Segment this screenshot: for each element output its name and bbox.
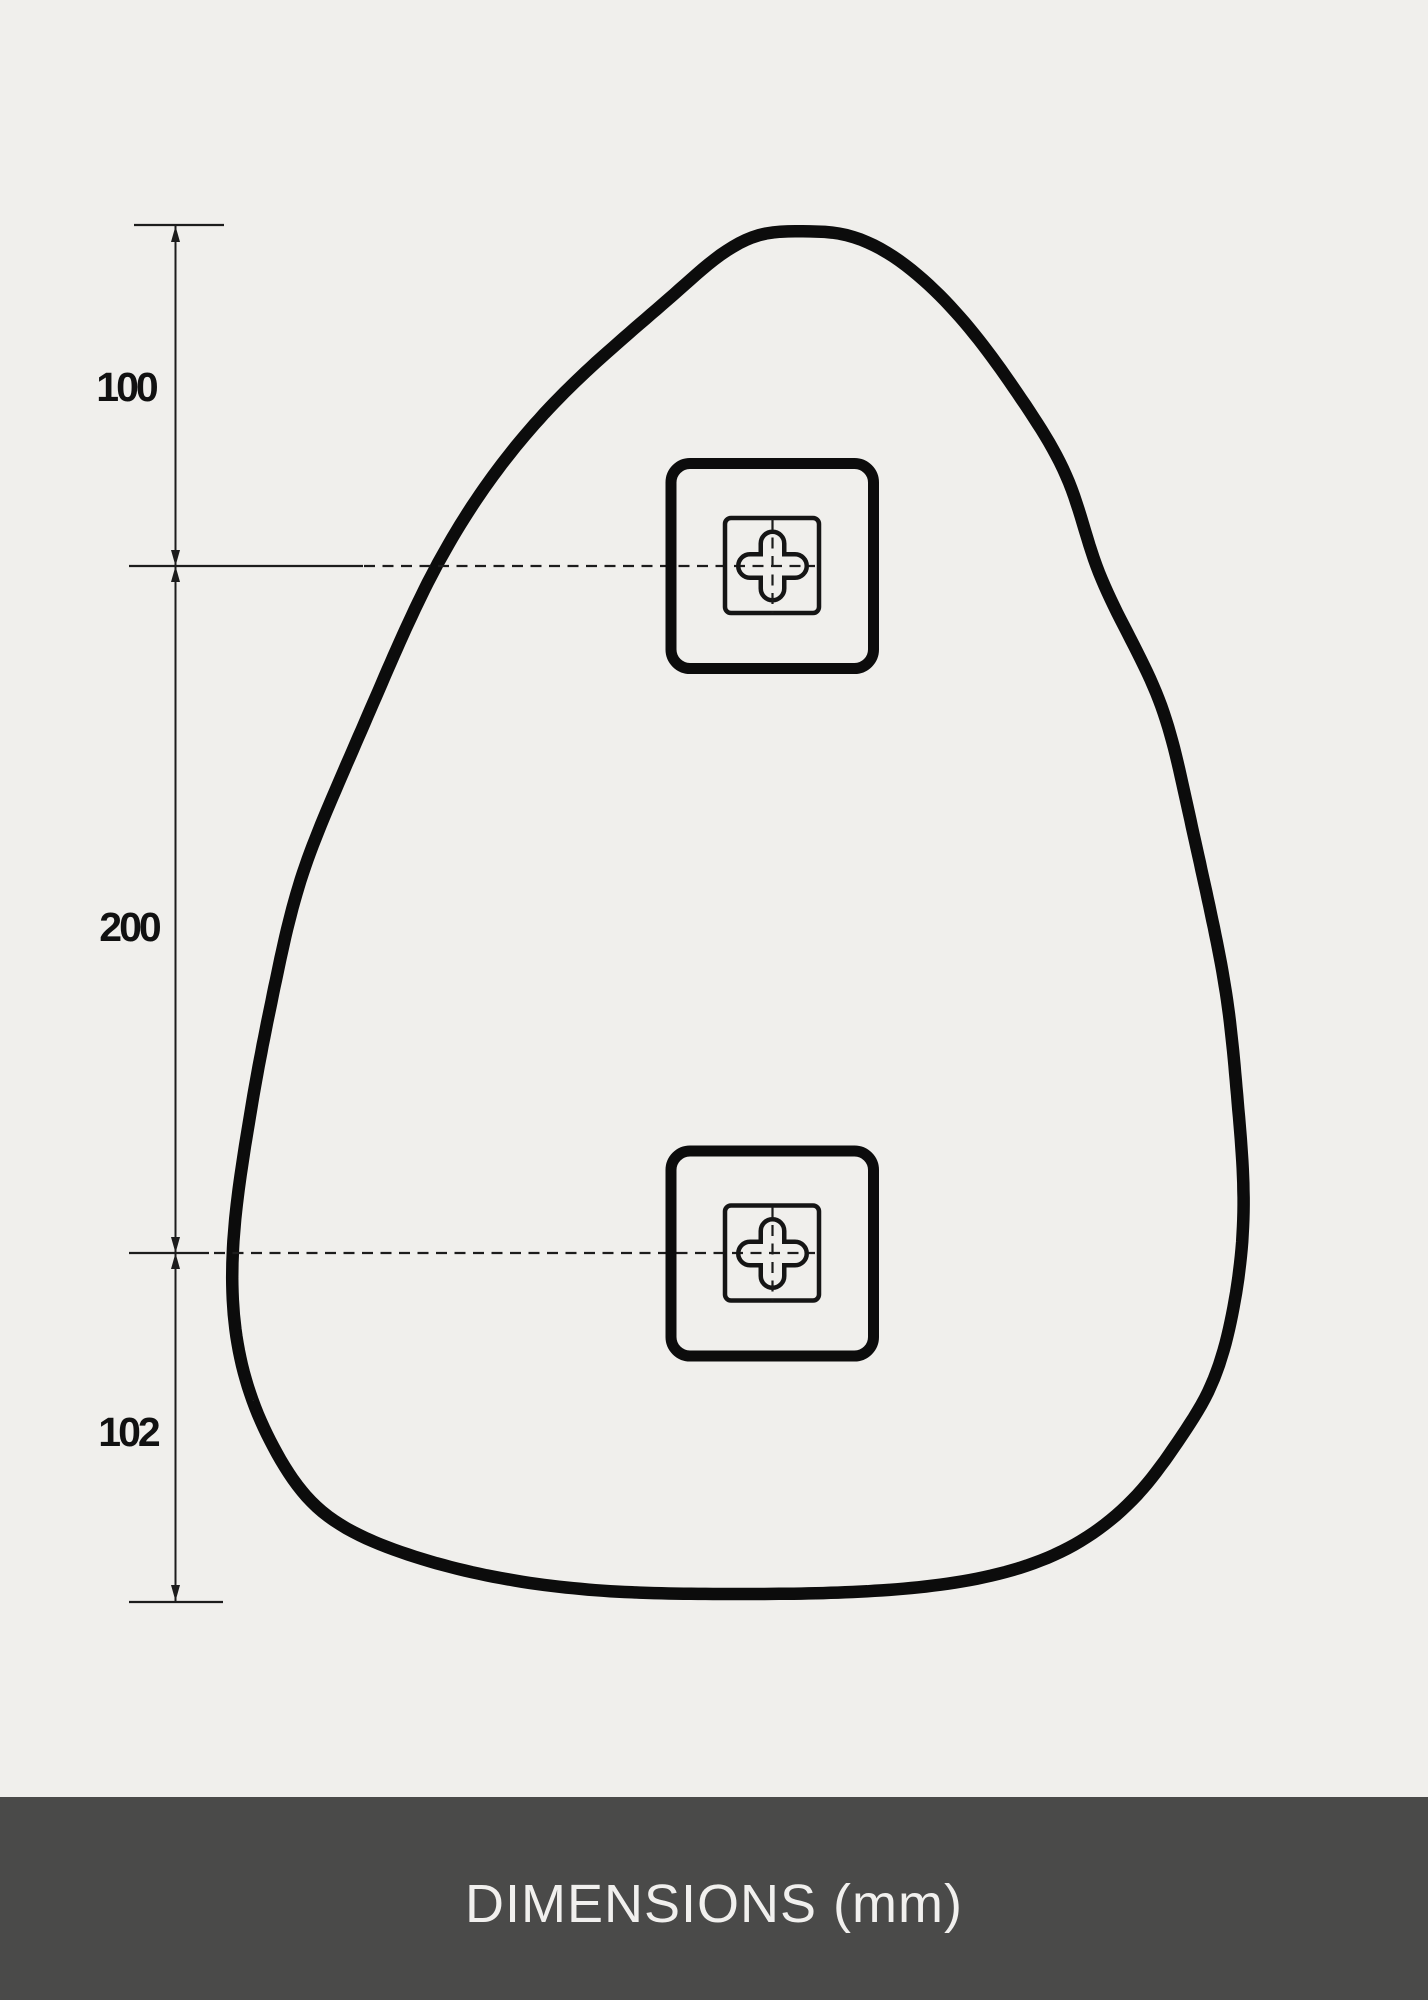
svg-text:DIMENSIONS (mm): DIMENSIONS (mm)	[465, 1874, 963, 1934]
svg-text:102: 102	[98, 1409, 160, 1455]
svg-text:100: 100	[96, 364, 158, 410]
svg-text:200: 200	[99, 904, 161, 950]
